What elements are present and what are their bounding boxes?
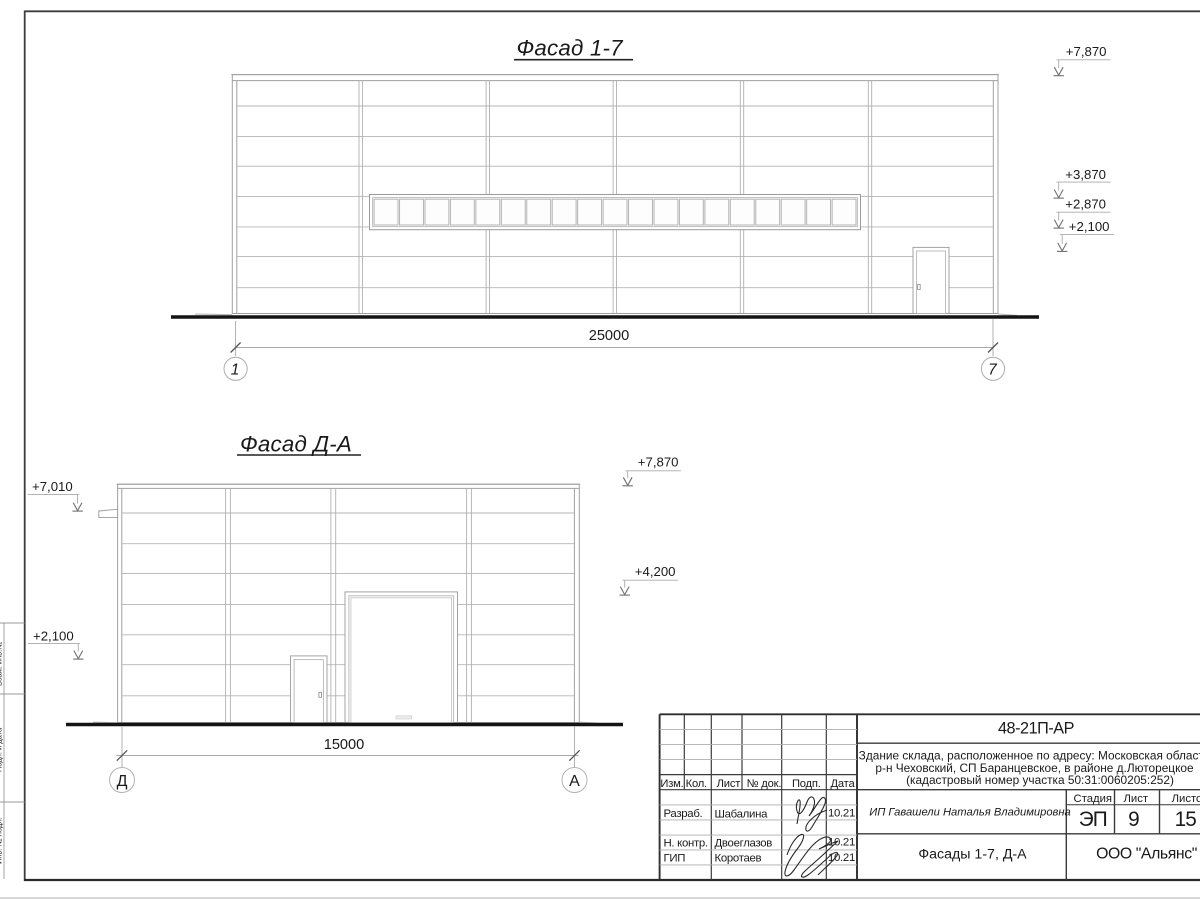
svg-text:+2,100: +2,100: [1069, 219, 1110, 234]
svg-text:ГИП: ГИП: [664, 853, 686, 865]
svg-text:25000: 25000: [589, 328, 630, 344]
svg-text:№ док.: № док.: [747, 778, 782, 790]
svg-text:Н. контр.: Н. контр.: [664, 838, 708, 850]
svg-text:ООО "Альянс": ООО "Альянс": [1096, 845, 1197, 862]
svg-text:9: 9: [1128, 808, 1139, 831]
svg-text:15000: 15000: [324, 737, 365, 753]
svg-text:1: 1: [231, 361, 240, 378]
svg-text:Фасады 1-7, Д-А: Фасады 1-7, Д-А: [918, 847, 1027, 863]
svg-text:Дата: Дата: [831, 778, 856, 790]
svg-text:+2,100: +2,100: [33, 629, 74, 644]
svg-text:15: 15: [1175, 808, 1197, 831]
svg-text:+2,870: +2,870: [1065, 197, 1106, 212]
svg-text:Стадия: Стадия: [1074, 793, 1113, 805]
svg-text:Кол.: Кол.: [686, 778, 707, 790]
svg-text:Д: Д: [117, 773, 128, 790]
svg-text:+7,870: +7,870: [638, 455, 679, 470]
svg-text:+7,870: +7,870: [1066, 44, 1107, 59]
svg-text:+3,870: +3,870: [1065, 167, 1106, 182]
svg-text:Фасад Д-А: Фасад Д-А: [240, 432, 352, 457]
svg-text:Подп.: Подп.: [792, 778, 821, 790]
svg-text:7: 7: [988, 361, 998, 378]
svg-text:10.21: 10.21: [828, 807, 855, 819]
svg-text:Лист: Лист: [1124, 793, 1149, 805]
svg-text:Взам. инв.№: Взам. инв.№: [0, 642, 4, 686]
svg-text:(кадастровый номер участка 50:: (кадастровый номер участка 50:31:0060205…: [906, 773, 1174, 787]
svg-text:Фасад 1-7: Фасад 1-7: [517, 36, 625, 61]
svg-text:+7,010: +7,010: [32, 479, 73, 494]
svg-text:Листов: Листов: [1172, 793, 1200, 805]
svg-text:Шабалина: Шабалина: [715, 808, 769, 820]
svg-text:Коротаев: Коротаев: [715, 853, 762, 865]
svg-text:+4,200: +4,200: [635, 564, 676, 579]
svg-text:Инв. № подл.: Инв. № подл.: [0, 817, 4, 864]
svg-text:А: А: [569, 773, 580, 790]
svg-text:Лист: Лист: [717, 778, 741, 790]
svg-text:Разраб.: Разраб.: [664, 808, 703, 820]
svg-text:Изм.: Изм.: [660, 778, 683, 790]
svg-text:Подп. и дата: Подп. и дата: [0, 727, 4, 772]
svg-text:48-21П-АР: 48-21П-АР: [998, 720, 1074, 738]
svg-text:ЭП: ЭП: [1079, 808, 1107, 831]
svg-text:Двоеглазов: Двоеглазов: [715, 838, 773, 850]
svg-text:ИП Гавашели Наталья Владимиров: ИП Гавашели Наталья Владимировна: [869, 806, 1071, 818]
